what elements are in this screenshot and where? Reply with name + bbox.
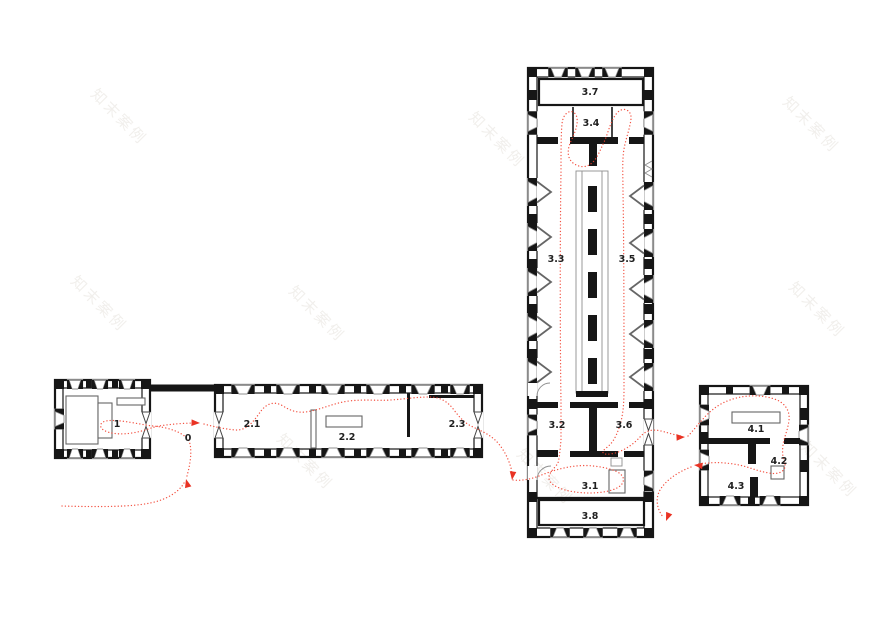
room-label-3-3: 3.3 bbox=[548, 254, 565, 265]
folding-panel bbox=[645, 161, 652, 177]
room-label-3-7: 3.7 bbox=[582, 87, 599, 98]
link-court bbox=[150, 385, 215, 392]
room-label-1: 1 bbox=[114, 419, 121, 430]
watermark-text: 知末案例 bbox=[67, 272, 131, 336]
stair-core bbox=[609, 470, 625, 493]
route-arrow bbox=[663, 512, 672, 522]
floor-plan-canvas: 知末案例 知末案例 知末案例 知末案例 知末案例 知末案例 知末案例 知末案例 … bbox=[0, 0, 880, 622]
route-arrow bbox=[191, 419, 200, 426]
watermark-text: 知末案例 bbox=[285, 282, 349, 346]
watermark-layer: 知末案例 知末案例 知末案例 知末案例 知末案例 知末案例 知末案例 知末案例 … bbox=[67, 85, 861, 509]
wall-shelf bbox=[117, 398, 145, 405]
door-annex-upper bbox=[700, 405, 710, 426]
room-label-3-1: 3.1 bbox=[582, 481, 599, 492]
route-arrow bbox=[676, 434, 685, 441]
room-label-3-8: 3.8 bbox=[582, 511, 599, 522]
watermark-text: 知末案例 bbox=[465, 108, 529, 172]
route-segment-gallery bbox=[204, 397, 512, 477]
room-label-3-5: 3.5 bbox=[619, 254, 636, 265]
display-table bbox=[326, 416, 362, 427]
building-annex bbox=[700, 386, 809, 506]
room-label-2-3: 2.3 bbox=[449, 419, 466, 430]
room-label-4-2: 4.2 bbox=[771, 456, 788, 467]
room-label-4-1: 4.1 bbox=[748, 424, 765, 435]
room-label-2-1: 2.1 bbox=[244, 419, 261, 430]
route-segment-entry bbox=[62, 483, 184, 507]
partition-23-top bbox=[429, 395, 474, 398]
display-panel bbox=[311, 410, 316, 448]
room-label-4-3: 4.3 bbox=[728, 481, 745, 492]
watermark-text: 知末案例 bbox=[779, 93, 843, 157]
reception-desk bbox=[66, 396, 98, 444]
duct bbox=[611, 458, 622, 466]
room-label-0: 0 bbox=[185, 433, 192, 444]
route-segment-exit bbox=[657, 467, 691, 517]
building-entry-pavilion bbox=[55, 380, 152, 459]
room-label-2-2: 2.2 bbox=[339, 432, 356, 443]
door-hall-west-upper bbox=[528, 383, 551, 396]
service-box bbox=[771, 466, 784, 479]
door-gallery-west bbox=[214, 412, 224, 438]
display-table bbox=[732, 412, 780, 423]
floor-plan-drawing: 知末案例 知末案例 知末案例 知末案例 知末案例 知末案例 知末案例 知末案例 … bbox=[0, 0, 880, 622]
partition-23 bbox=[407, 393, 410, 437]
room-label-3-2: 3.2 bbox=[549, 420, 566, 431]
building-main-hall bbox=[528, 68, 654, 538]
room-label-3-4: 3.4 bbox=[583, 118, 600, 129]
door-gallery-east bbox=[473, 412, 483, 438]
room-label-3-6: 3.6 bbox=[616, 420, 633, 431]
court-wall bbox=[150, 385, 215, 392]
route-arrow bbox=[509, 471, 517, 480]
central-display-spine bbox=[576, 171, 608, 397]
watermark-text: 知末案例 bbox=[785, 278, 849, 342]
watermark-text: 知末案例 bbox=[87, 85, 151, 149]
visitor-route bbox=[62, 109, 789, 522]
watermark-text: 知末案例 bbox=[273, 430, 337, 494]
door-hall-east bbox=[644, 419, 654, 445]
